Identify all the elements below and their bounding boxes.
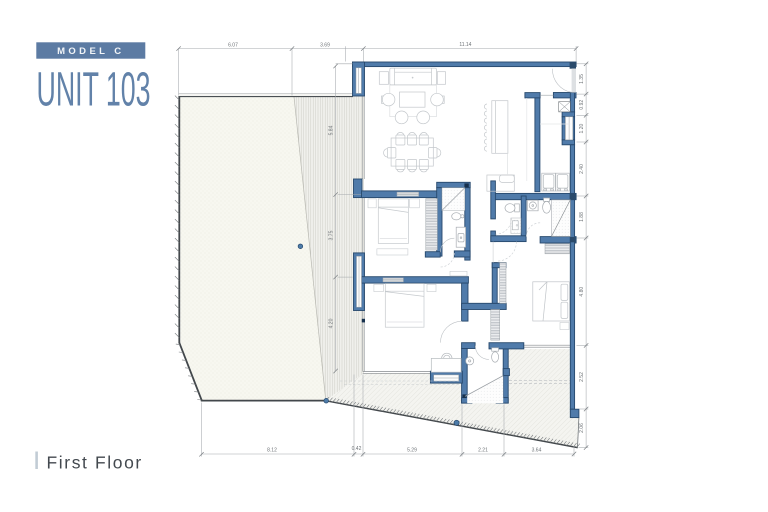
- svg-text:6.07: 6.07: [228, 42, 238, 48]
- svg-text:3.75: 3.75: [329, 230, 335, 240]
- svg-text:1.88: 1.88: [579, 212, 585, 222]
- svg-text:4.80: 4.80: [579, 287, 585, 297]
- svg-text:0.42: 0.42: [352, 446, 362, 452]
- svg-text:5.84: 5.84: [329, 125, 335, 135]
- svg-text:1.20: 1.20: [579, 124, 585, 134]
- svg-text:11.14: 11.14: [459, 42, 471, 48]
- svg-text:2.21: 2.21: [478, 447, 488, 453]
- svg-text:2.40: 2.40: [579, 164, 585, 174]
- svg-text:4.20: 4.20: [329, 318, 335, 328]
- svg-text:8.12: 8.12: [267, 447, 277, 453]
- svg-text:5.29: 5.29: [407, 447, 417, 453]
- svg-text:MODEL C: MODEL C: [57, 46, 124, 57]
- svg-text:3.64: 3.64: [532, 447, 542, 453]
- svg-text:2.52: 2.52: [579, 372, 585, 382]
- svg-text:First Floor: First Floor: [47, 453, 143, 473]
- svg-text:0.92: 0.92: [579, 100, 585, 110]
- svg-text:2.06: 2.06: [579, 423, 585, 433]
- svg-text:3.69: 3.69: [320, 42, 330, 48]
- svg-text:1.35: 1.35: [579, 74, 585, 84]
- svg-text:UNIT 103: UNIT 103: [37, 63, 151, 116]
